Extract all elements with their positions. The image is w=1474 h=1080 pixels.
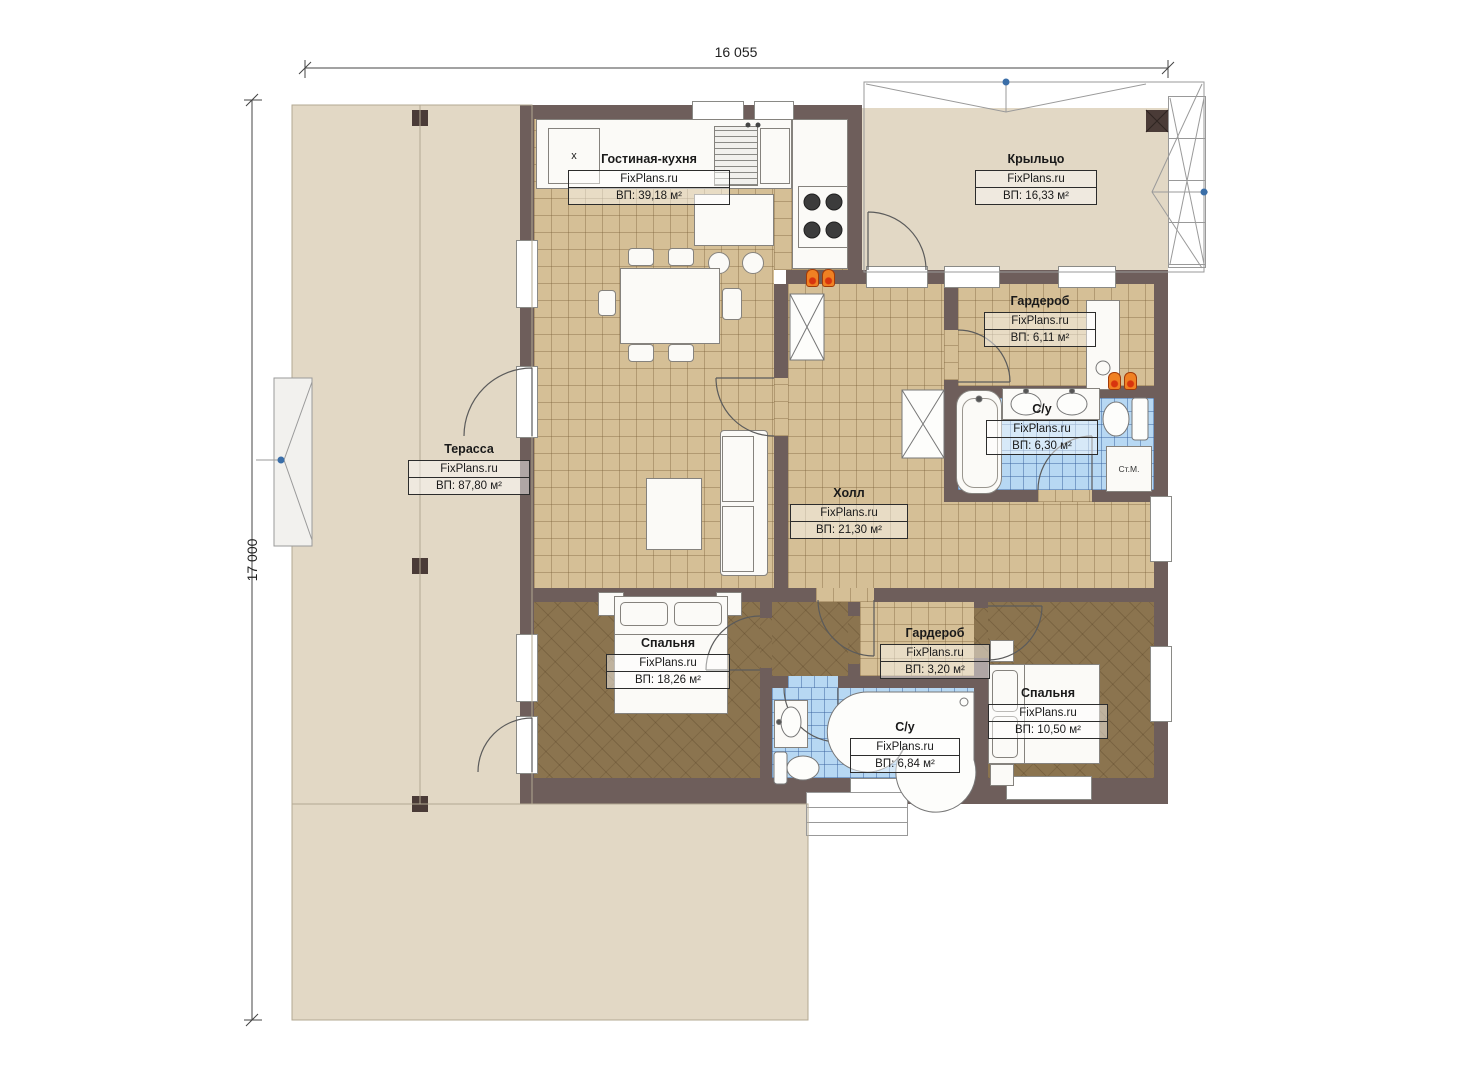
floor-plan: x Ст.М. [0,0,1474,1080]
coffee-table [646,478,702,550]
door-gap-living-hall [774,378,788,436]
dining-chair [598,290,616,316]
door-gap-hall-wardrobe [944,330,958,380]
room-label-bathroom-bottom: С/у FixPlans.ru ВП: 6,84 м² [850,720,960,773]
room-label-wardrobe-bottom: Гардероб FixPlans.ru ВП: 3,20 м² [880,626,990,679]
terrace-pillar [412,796,428,812]
sofa-cushion [722,506,754,572]
room-name: Крыльцо [975,152,1097,168]
room-area: ВП: 3,20 м² [881,662,989,678]
brand-watermark: FixPlans.ru [409,461,529,478]
door-gap-hall-bath [1038,490,1092,502]
window-hall-east [1150,496,1172,562]
window-bedroom-left-west [516,634,538,702]
blanket-line [614,634,728,635]
vestibule-floor [772,602,848,676]
brand-watermark: FixPlans.ru [569,171,729,188]
room-name: Спальня [606,636,730,652]
dimension-height: 17 000 [244,514,260,606]
stove [798,186,848,248]
dining-chair [668,248,694,266]
radiator-icon [1108,372,1121,390]
room-name: Гардероб [984,294,1096,310]
door-gap-bedroom-left [760,618,772,668]
window-wardrobe-north-1 [944,266,1000,288]
room-name: Терасса [408,442,530,458]
dimension-width: 16 055 [690,44,782,60]
door-gap-hall-vestibule [816,588,874,602]
room-label-bedroom-right: Спальня FixPlans.ru ВП: 10,50 м² [988,686,1108,739]
room-name: Гардероб [880,626,990,642]
door-bedroom-left-terrace [516,716,538,774]
porch-pillar [1146,110,1168,132]
sink-counter [774,700,808,748]
terrace-pillar [412,558,428,574]
nightstand [990,764,1014,786]
bar-stool [742,252,764,274]
room-area: ВП: 18,26 м² [607,672,729,688]
brand-watermark: FixPlans.ru [976,171,1096,188]
south-exit-steps [806,792,908,836]
radiator-icon [822,269,835,287]
brand-watermark: FixPlans.ru [607,655,729,672]
door-entry-porch [866,266,928,288]
wall-living-hall [774,284,788,600]
porch-entry-steps [1168,96,1206,268]
terrace-floor-lower [292,804,808,1020]
door-gap-bath-bottom [788,676,838,688]
room-label-hall: Холл FixPlans.ru ВП: 21,30 м² [790,486,908,539]
room-area: ВП: 87,80 м² [409,478,529,494]
room-area: ВП: 6,84 м² [851,756,959,772]
room-name: С/у [986,402,1098,418]
nightstand [990,640,1014,662]
pillow [620,602,668,626]
room-area: ВП: 6,30 м² [987,438,1097,454]
radiator-icon [806,269,819,287]
roof-node-icon [278,457,285,464]
room-label-bedroom-left: Спальня FixPlans.ru ВП: 18,26 м² [606,636,730,689]
room-name: Спальня [988,686,1108,702]
door-gap-wardrobe-bottom [848,616,860,664]
window-wardrobe-north-2 [1058,266,1116,288]
dining-chair [668,344,694,362]
room-area: ВП: 10,50 м² [989,722,1107,738]
room-area: ВП: 21,30 м² [791,522,907,538]
dining-chair [628,344,654,362]
dining-table [620,268,720,344]
room-name: Холл [790,486,908,502]
brand-watermark: FixPlans.ru [989,705,1107,722]
sofa-cushion [722,436,754,502]
room-name: С/у [850,720,960,736]
radiator-icon [1124,372,1137,390]
room-name: Гостиная-кухня [568,152,730,168]
room-area: ВП: 16,33 м² [976,188,1096,204]
wall-north [520,105,862,119]
window-bedroom-right-south [1006,776,1092,800]
window-bedroom-right-east [1150,646,1172,722]
terrace-pillar [412,110,428,126]
room-area: ВП: 6,11 м² [985,330,1095,346]
door-living-terrace [516,366,538,438]
washing-machine: Ст.М. [1106,446,1152,492]
kitchen-sink [760,128,790,184]
pillow [674,602,722,626]
dining-armchair [722,288,742,320]
brand-watermark: FixPlans.ru [881,645,989,662]
brand-watermark: FixPlans.ru [987,421,1097,438]
room-label-porch: Крыльцо FixPlans.ru ВП: 16,33 м² [975,152,1097,205]
brand-watermark: FixPlans.ru [791,505,907,522]
room-label-bathroom-top: С/у FixPlans.ru ВП: 6,30 м² [986,402,1098,455]
room-label-living-kitchen: Гостиная-кухня FixPlans.ru ВП: 39,18 м² [568,152,730,205]
room-area: ВП: 39,18 м² [569,188,729,204]
washing-machine-label: Ст.М. [1119,464,1140,474]
room-label-wardrobe-top: Гардероб FixPlans.ru ВП: 6,11 м² [984,294,1096,347]
brand-watermark: FixPlans.ru [851,739,959,756]
window-living-west [516,240,538,308]
roof-node-icon [1003,79,1010,86]
dining-chair [628,248,654,266]
brand-watermark: FixPlans.ru [985,313,1095,330]
wall-kitchen-porch [848,105,862,284]
room-label-terrace: Терасса FixPlans.ru ВП: 87,80 м² [408,442,530,495]
